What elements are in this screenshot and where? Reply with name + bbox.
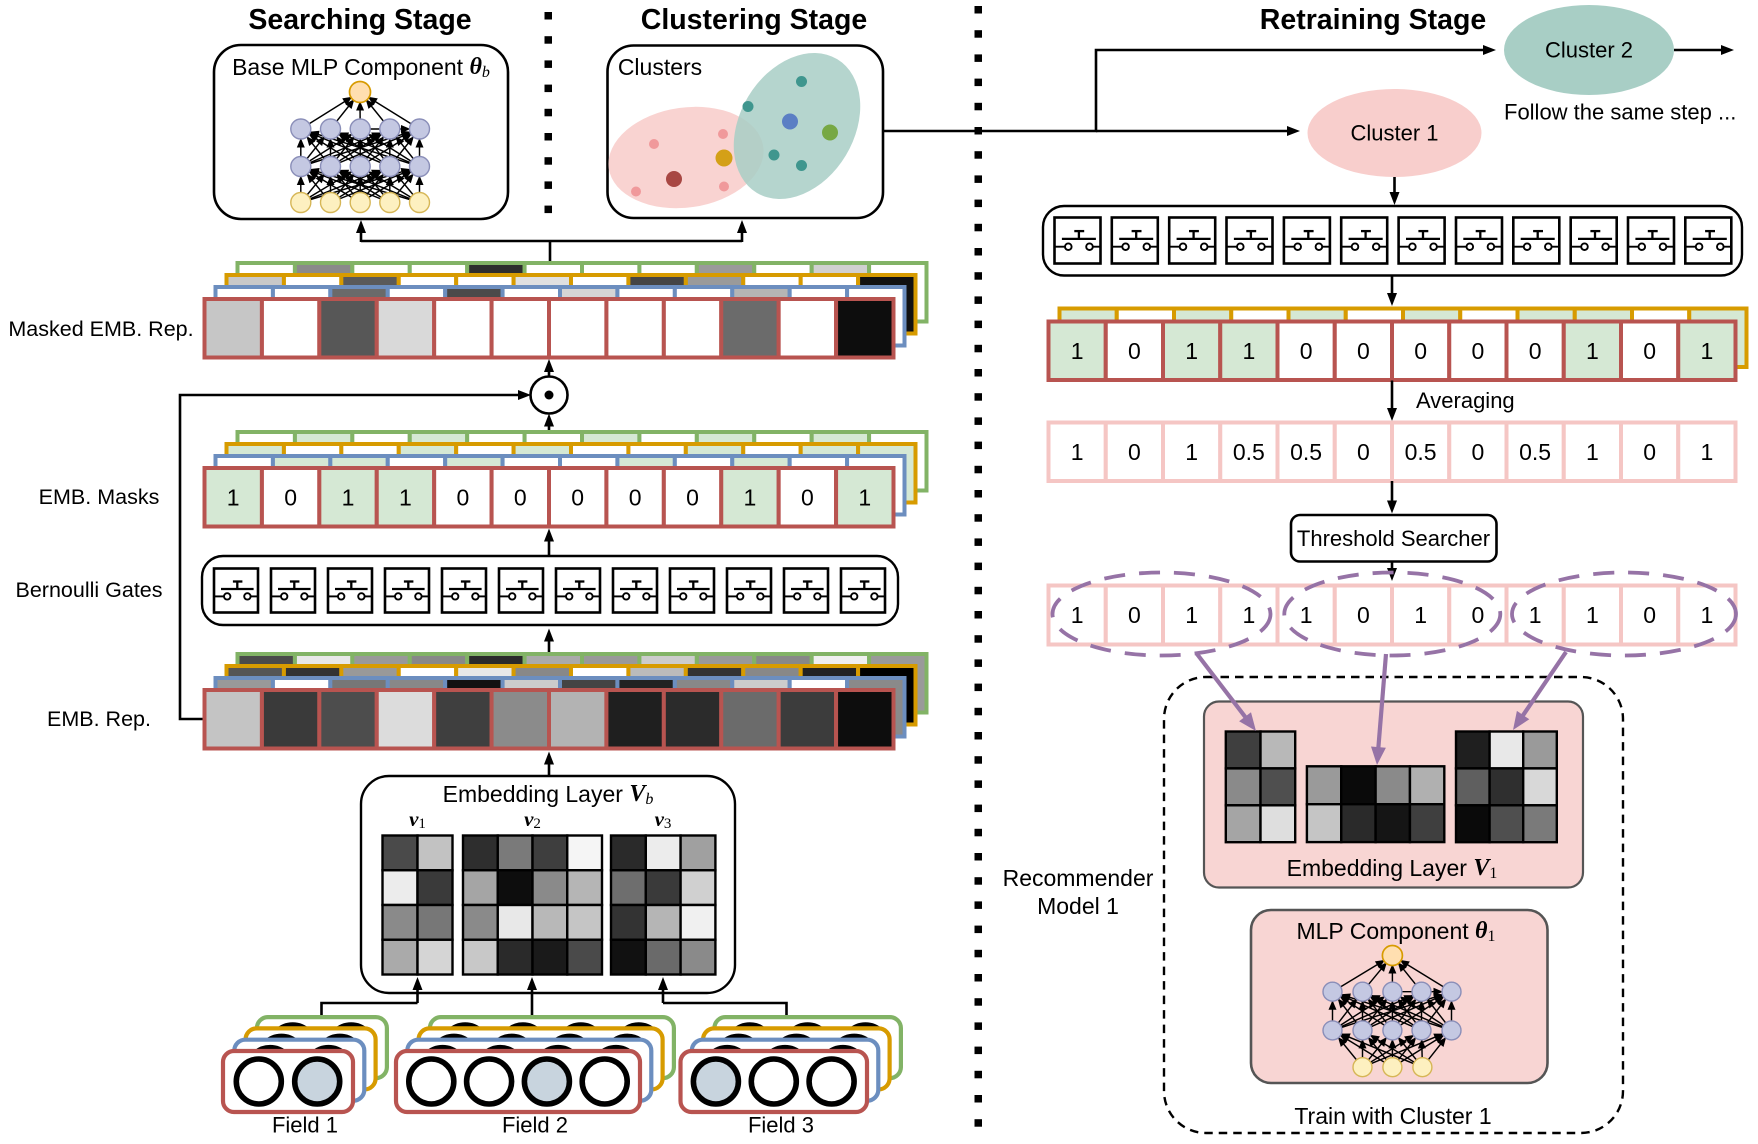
svg-text:1: 1 xyxy=(744,484,757,510)
svg-text:Embedding Layer V1: Embedding Layer V1 xyxy=(1287,855,1498,882)
svg-text:1: 1 xyxy=(1529,602,1542,628)
svg-text:Recommender: Recommender xyxy=(1003,865,1154,891)
svg-text:Searching Stage: Searching Stage xyxy=(248,4,471,36)
svg-text:0: 0 xyxy=(1357,439,1370,465)
svg-text:0: 0 xyxy=(514,484,527,510)
svg-text:Train with Cluster 1: Train with Cluster 1 xyxy=(1294,1103,1491,1129)
svg-text:0: 0 xyxy=(1300,338,1313,364)
svg-text:0: 0 xyxy=(1128,602,1141,628)
svg-text:Threshold Searcher: Threshold Searcher xyxy=(1297,526,1490,551)
svg-text:0: 0 xyxy=(686,484,699,510)
svg-text:Field 2: Field 2 xyxy=(502,1113,568,1138)
svg-text:0: 0 xyxy=(1128,439,1141,465)
svg-text:Bernoulli Gates: Bernoulli Gates xyxy=(16,578,163,602)
svg-text:1: 1 xyxy=(399,484,412,510)
svg-text:Cluster 2: Cluster 2 xyxy=(1545,38,1633,63)
svg-text:0.5: 0.5 xyxy=(1519,439,1551,465)
svg-text:Clusters: Clusters xyxy=(618,54,702,80)
svg-text:0: 0 xyxy=(1529,338,1542,364)
svg-text:1: 1 xyxy=(1071,439,1084,465)
svg-text:Cluster 1: Cluster 1 xyxy=(1350,121,1438,146)
svg-text:0: 0 xyxy=(1643,602,1656,628)
svg-text:1: 1 xyxy=(1300,602,1313,628)
svg-text:1: 1 xyxy=(1071,602,1084,628)
svg-text:0: 0 xyxy=(1128,338,1141,364)
svg-text:1: 1 xyxy=(1700,338,1713,364)
svg-text:1: 1 xyxy=(1185,338,1198,364)
svg-text:1: 1 xyxy=(1185,602,1198,628)
svg-text:Masked EMB. Rep.: Masked EMB. Rep. xyxy=(8,317,193,341)
svg-text:0: 0 xyxy=(629,484,642,510)
svg-text:0: 0 xyxy=(1643,338,1656,364)
svg-text:0: 0 xyxy=(801,484,814,510)
svg-text:Field 3: Field 3 xyxy=(748,1113,814,1138)
svg-text:Base MLP Component θb: Base MLP Component θb xyxy=(232,54,490,81)
svg-text:1: 1 xyxy=(342,484,355,510)
svg-text:1: 1 xyxy=(1071,338,1084,364)
svg-text:0.5: 0.5 xyxy=(1233,439,1265,465)
svg-text:0: 0 xyxy=(1357,602,1370,628)
svg-text:1: 1 xyxy=(1700,602,1713,628)
svg-text:1: 1 xyxy=(1586,602,1599,628)
svg-text:0: 0 xyxy=(1357,338,1370,364)
svg-text:0: 0 xyxy=(571,484,584,510)
svg-text:1: 1 xyxy=(1414,602,1427,628)
svg-text:0: 0 xyxy=(456,484,469,510)
svg-text:Follow the same step ...: Follow the same step ... xyxy=(1504,100,1736,125)
svg-text:1: 1 xyxy=(1586,439,1599,465)
svg-text:0: 0 xyxy=(1471,602,1484,628)
svg-text:0: 0 xyxy=(1414,338,1427,364)
svg-text:0: 0 xyxy=(1471,338,1484,364)
svg-text:1: 1 xyxy=(1242,338,1255,364)
svg-text:1: 1 xyxy=(1242,602,1255,628)
svg-text:EMB. Rep.: EMB. Rep. xyxy=(47,707,151,731)
svg-text:1: 1 xyxy=(1586,338,1599,364)
svg-text:EMB. Masks: EMB. Masks xyxy=(39,485,160,509)
svg-text:0: 0 xyxy=(1643,439,1656,465)
svg-text:Averaging: Averaging xyxy=(1416,388,1515,413)
svg-text:Embedding Layer Vb: Embedding Layer Vb xyxy=(443,781,654,808)
svg-text:Field 1: Field 1 xyxy=(272,1113,338,1138)
svg-text:Clustering Stage: Clustering Stage xyxy=(641,4,867,36)
svg-text:0.5: 0.5 xyxy=(1290,439,1322,465)
svg-text:0: 0 xyxy=(284,484,297,510)
svg-text:1: 1 xyxy=(858,484,871,510)
svg-text:Retraining Stage: Retraining Stage xyxy=(1260,4,1486,36)
svg-text:Model 1: Model 1 xyxy=(1037,893,1119,919)
svg-text:MLP Component θ1: MLP Component θ1 xyxy=(1296,918,1495,945)
svg-text:0.5: 0.5 xyxy=(1405,439,1437,465)
svg-text:0: 0 xyxy=(1471,439,1484,465)
svg-text:1: 1 xyxy=(1185,439,1198,465)
svg-text:1: 1 xyxy=(1700,439,1713,465)
svg-text:1: 1 xyxy=(227,484,240,510)
